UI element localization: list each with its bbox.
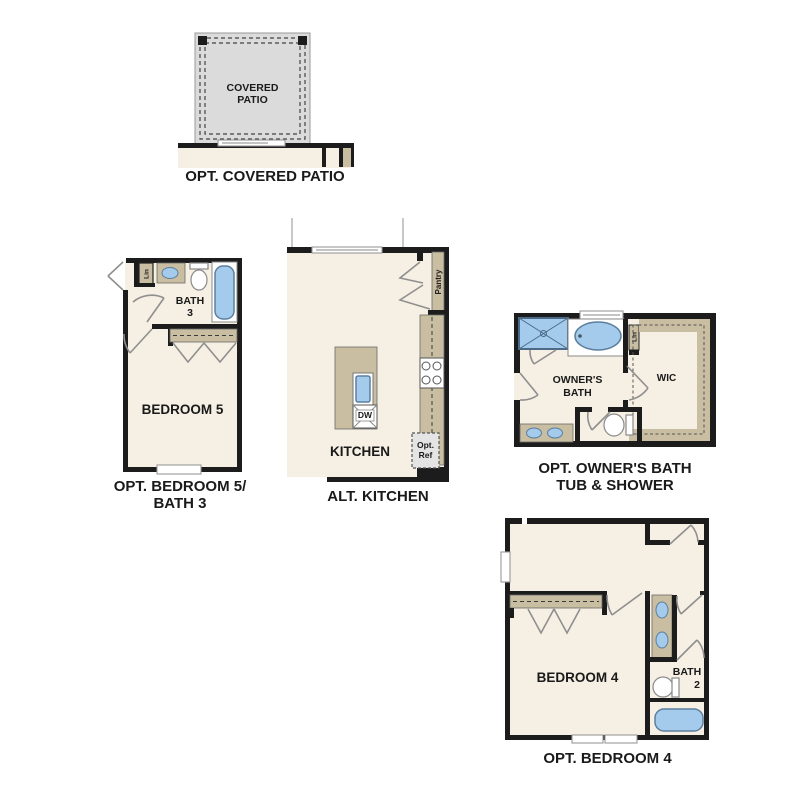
bath2-room-number: 2 xyxy=(687,679,707,691)
bedroom5-room-label: BEDROOM 5 xyxy=(125,402,240,417)
entry-door-icon xyxy=(108,262,123,290)
bath2-room-label: BATH xyxy=(667,666,707,678)
stove xyxy=(420,358,444,388)
bath3-sink xyxy=(157,263,185,283)
bedroom4-drawing xyxy=(495,512,720,748)
window xyxy=(157,465,201,474)
plan-bedroom5-bath3: Lin xyxy=(100,250,260,522)
dw-label: DW xyxy=(351,411,379,421)
bedroom4-caption: OPT. BEDROOM 4 xyxy=(495,750,720,767)
bedroom4-room-label: BEDROOM 4 xyxy=(510,670,645,685)
lin-label: Lin xyxy=(144,269,151,279)
plan-owners-bath: Lin xyxy=(510,308,720,500)
tub-faucet xyxy=(578,334,582,338)
bath3-room-label: BATH 3 xyxy=(160,295,220,319)
window xyxy=(501,552,510,582)
plan-bedroom4: BEDROOM 4 BATH 2 OPT. BEDROOM 4 xyxy=(495,512,720,780)
bedroom5-bath3-drawing: Lin xyxy=(100,250,260,480)
plan-alt-kitchen: Pantry xyxy=(285,218,460,508)
bath3-toilet xyxy=(190,263,208,290)
patio-caption: OPT. COVERED PATIO xyxy=(170,168,360,185)
window xyxy=(580,311,623,319)
bathtub xyxy=(568,319,624,356)
kitchen-window xyxy=(312,247,382,253)
shower xyxy=(519,318,568,349)
vanity-double-sink xyxy=(520,424,573,442)
patio-room-label: COVERED PATIO xyxy=(195,82,310,106)
floor-plan-options-sheet: COVERED PATIO OPT. COVERED PATIO Lin xyxy=(0,0,810,810)
wall-cut-lines xyxy=(292,218,403,247)
pantry-label: Pantry xyxy=(434,269,443,294)
bedroom5-caption: OPT. BEDROOM 5/ BATH 3 xyxy=(100,478,260,512)
kitchen-caption: ALT. KITCHEN xyxy=(285,488,471,505)
sliding-door-icon xyxy=(218,140,285,146)
owners-bath-caption: OPT. OWNER'S BATH TUB & SHOWER xyxy=(500,460,730,494)
toilet xyxy=(604,414,633,436)
owners-bath-room-label: OWNER'S BATH xyxy=(530,374,625,399)
bath2-tub xyxy=(655,709,703,731)
plan-covered-patio: COVERED PATIO OPT. COVERED PATIO xyxy=(170,22,360,192)
lin-closet: Lin xyxy=(629,325,639,355)
bottom-windows xyxy=(572,735,637,743)
kitchen-room-label: KITCHEN xyxy=(285,444,435,459)
bath2-toilet xyxy=(653,677,679,697)
bath2-divider-wall xyxy=(650,698,709,702)
room-floor xyxy=(505,518,709,740)
island-sink xyxy=(356,376,370,402)
wic-room-label: WIC xyxy=(629,373,704,384)
